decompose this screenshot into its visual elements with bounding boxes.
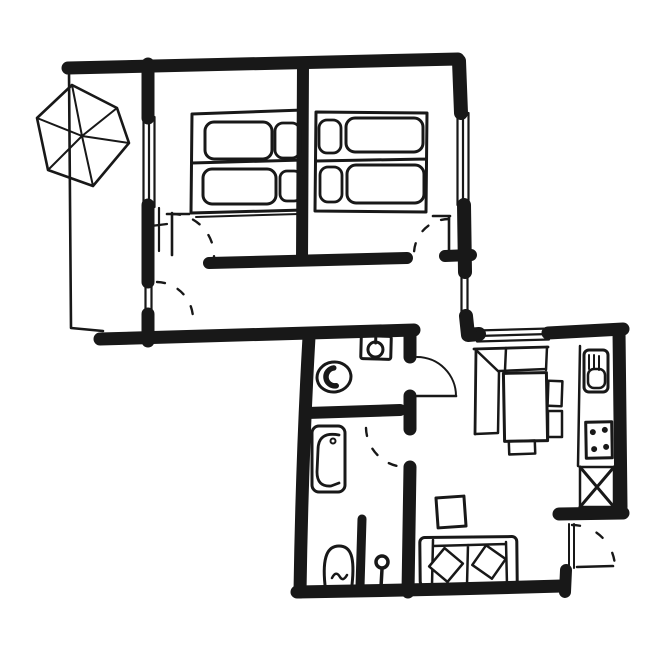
toilet-seat — [325, 368, 336, 387]
pillow — [320, 167, 342, 202]
dining-table — [503, 373, 547, 442]
floor-plan-page — [0, 0, 671, 660]
washstand-bowl — [376, 556, 388, 568]
cabinet-cross — [580, 467, 614, 507]
door-leaf — [433, 216, 450, 254]
bedroom-1-furniture — [151, 110, 304, 251]
window-kitchen-north — [477, 329, 549, 342]
washstand-stem — [381, 569, 382, 587]
door-swing-arc — [417, 357, 456, 396]
door-wc — [417, 357, 456, 396]
toilet-icon — [324, 546, 353, 585]
balcony-outline — [69, 72, 103, 331]
wall-entry-bottom-stub — [565, 570, 566, 592]
wall-bath-living — [408, 467, 410, 592]
sink-bowl — [588, 369, 605, 388]
duvet — [205, 122, 272, 159]
wall-bedrooms-bottom — [209, 258, 407, 263]
corner-bench — [474, 347, 548, 434]
burner — [602, 427, 608, 433]
door-bathroom — [366, 428, 406, 467]
toilet-bowl — [315, 360, 353, 394]
duvet — [203, 169, 276, 204]
kitchen-fixtures — [474, 346, 614, 507]
floor-plan-drawing — [0, 0, 671, 660]
side-table — [436, 496, 466, 528]
pillow — [275, 123, 300, 158]
wall-top — [68, 59, 458, 68]
wall-east-corner — [466, 316, 479, 335]
tub-drain — [331, 439, 336, 444]
burner — [591, 446, 597, 452]
toilet-bowl — [324, 546, 353, 585]
toilet-icon — [315, 360, 353, 394]
parasol-icon — [37, 85, 129, 186]
bedroom-2-furniture — [315, 112, 427, 212]
cushion — [472, 545, 505, 578]
crossed-cabinet-icon — [580, 467, 614, 507]
door-leaf — [167, 213, 189, 255]
counter-edge — [578, 346, 580, 466]
balcony — [37, 72, 129, 331]
duvet — [347, 165, 424, 203]
door-entrance — [569, 524, 615, 568]
door-bedroom-1 — [167, 213, 214, 257]
washbasin-icon — [361, 336, 392, 360]
stove-icon — [586, 422, 613, 458]
chair — [548, 381, 563, 406]
duvet — [346, 118, 423, 152]
bathroom-fixtures — [312, 426, 388, 587]
burner — [590, 429, 596, 435]
door-leaf-closed — [569, 524, 574, 568]
washstand-icon — [376, 556, 388, 587]
living-room-furniture — [420, 496, 518, 586]
bench-seat-edge — [475, 347, 547, 434]
wall-bath-partition — [360, 519, 362, 587]
wall-wc-bath-west — [300, 337, 309, 592]
sofa — [420, 536, 518, 586]
window-bedroom2-east — [458, 112, 469, 206]
cushion — [429, 548, 463, 582]
wall-kitchen-east — [619, 331, 621, 507]
wall-entry-top-stub — [559, 513, 623, 514]
door-swing-arc — [157, 282, 193, 319]
double-bed-frame — [315, 112, 427, 212]
stove-body — [586, 422, 613, 458]
door-swing-arc — [572, 525, 615, 568]
toilet-seat — [332, 574, 347, 579]
door-leaf-open — [577, 566, 613, 567]
wc-fixtures — [315, 336, 391, 395]
door-swing-arc — [172, 214, 214, 257]
wall-east-upper — [459, 61, 461, 113]
wall-wc-bottom — [307, 410, 400, 413]
wall-east-mid — [464, 205, 465, 272]
door-swing-arc — [366, 428, 406, 467]
door-swing-arc — [414, 219, 449, 254]
bed-frame-sketch-line — [196, 214, 299, 217]
chair — [548, 411, 562, 437]
door-bedroom-2 — [414, 216, 450, 254]
window-bedroom1-west — [144, 116, 155, 207]
pillow — [319, 120, 341, 153]
burner — [603, 444, 609, 450]
sink-icon — [584, 350, 608, 392]
bathtub-icon — [312, 426, 345, 492]
wall-kitchen-top — [548, 329, 623, 333]
